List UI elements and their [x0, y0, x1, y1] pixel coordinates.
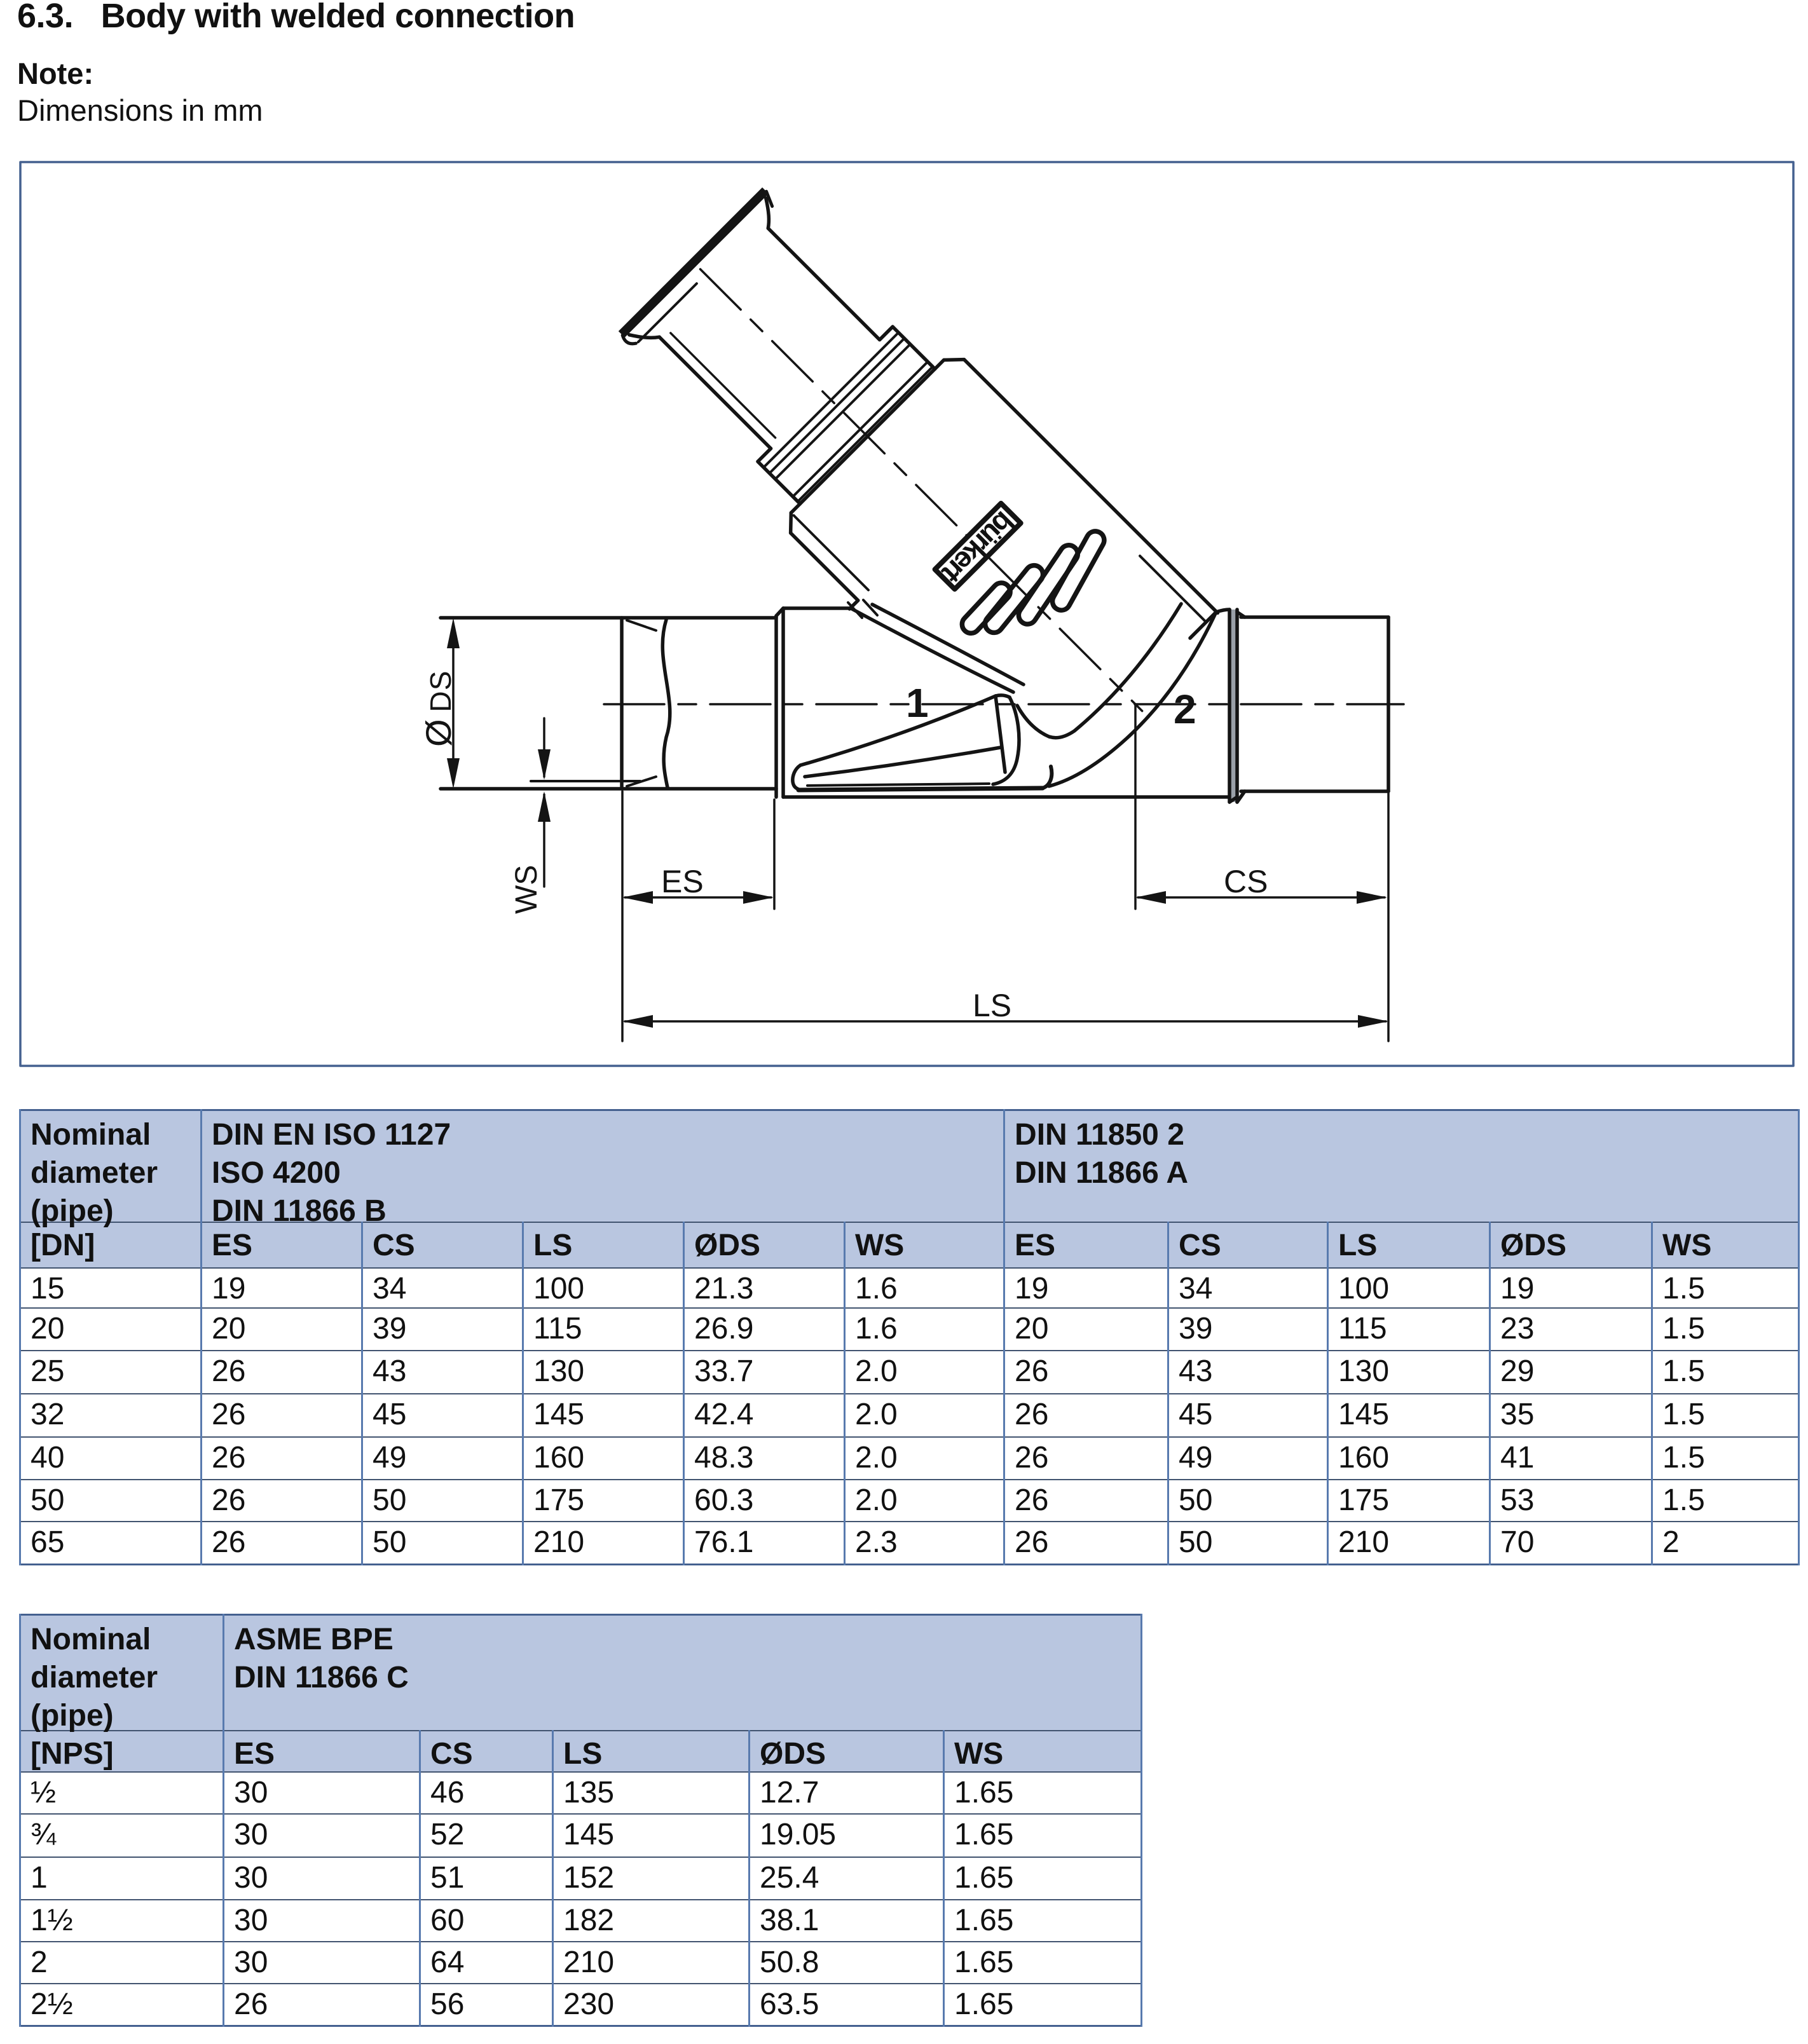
svg-text:WS: WS [510, 865, 544, 914]
svg-text:1: 1 [906, 680, 929, 726]
svg-text:LS: LS [973, 988, 1011, 1023]
svg-text:2: 2 [1174, 686, 1196, 732]
svg-text:ØDS: ØDS [418, 671, 458, 747]
svg-text:CS: CS [1224, 864, 1268, 899]
svg-text:ES: ES [661, 864, 704, 899]
